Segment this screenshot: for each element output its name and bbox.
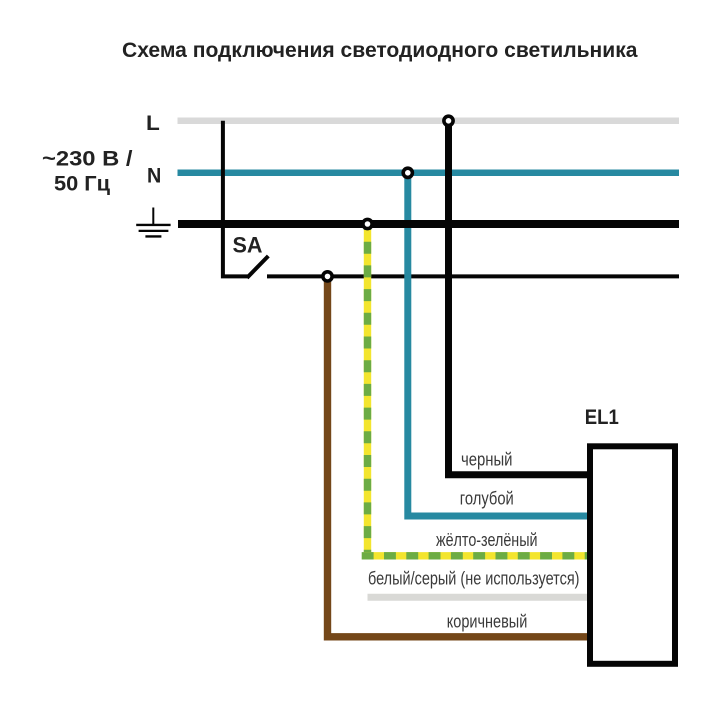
svg-text:жёлто-зелёный: жёлто-зелёный [436,530,538,550]
svg-text:коричневый: коричневый [447,612,528,632]
svg-text:EL1: EL1 [585,405,619,429]
svg-text:SA: SA [233,232,263,257]
svg-text:черный: черный [461,449,513,469]
svg-text:Схема подключения светодиодног: Схема подключения светодиодного светильн… [122,38,639,62]
svg-text:N: N [147,163,161,187]
svg-text:~230 В /: ~230 В / [42,146,133,170]
svg-text:50 Гц: 50 Гц [54,172,111,196]
svg-text:голубой: голубой [460,488,514,508]
svg-text:белый/серый (не используется): белый/серый (не используется) [368,568,580,588]
svg-text:L: L [146,111,160,135]
